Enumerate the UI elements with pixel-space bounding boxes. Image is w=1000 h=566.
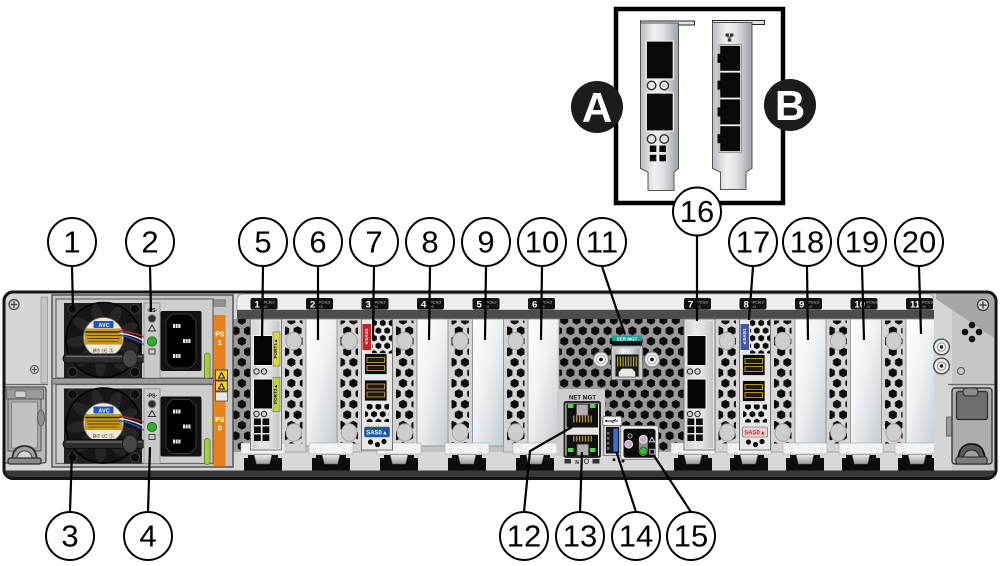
svg-text:17: 17 (736, 225, 770, 260)
svg-text:·PS·: ·PS· (147, 308, 158, 314)
svg-text:x8: x8 (264, 305, 268, 309)
svg-text:8: 8 (744, 300, 749, 311)
svg-text:◄SAS1: ◄SAS1 (364, 328, 370, 346)
svg-text:8: 8 (421, 225, 438, 260)
svg-text:9: 9 (477, 225, 494, 260)
svg-text:x8: x8 (922, 305, 926, 309)
svg-text:15: 15 (674, 519, 708, 554)
svg-text:x8: x8 (319, 305, 323, 309)
svg-text:7: 7 (688, 300, 693, 311)
svg-text:AVC: AVC (98, 408, 109, 414)
svg-text:PORT1▲: PORT1▲ (273, 339, 278, 359)
svg-text:SAS0▲: SAS0▲ (744, 431, 766, 437)
svg-text:19: 19 (845, 225, 879, 260)
svg-text:x8: x8 (375, 305, 379, 309)
svg-text:x8: x8 (867, 305, 871, 309)
svg-text:PCIe3: PCIe3 (922, 300, 934, 305)
svg-text:PCIe3: PCIe3 (486, 300, 498, 305)
svg-text:℟® cЄ Ⓢ: ℟® cЄ Ⓢ (93, 348, 114, 355)
svg-text:NET MGT: NET MGT (569, 396, 596, 402)
svg-text:1: 1 (63, 225, 80, 260)
svg-text:6: 6 (309, 225, 326, 260)
svg-text:11: 11 (586, 225, 618, 260)
svg-text:7: 7 (365, 225, 382, 260)
svg-text:3: 3 (366, 300, 371, 311)
svg-text:AVC: AVC (98, 323, 109, 329)
svg-text:14: 14 (619, 519, 653, 554)
svg-text:◄SAS1: ◄SAS1 (742, 328, 748, 346)
svg-text:PCIe3: PCIe3 (867, 300, 879, 305)
svg-text:PORT2▲: PORT2▲ (273, 384, 278, 404)
svg-text:x8: x8 (753, 305, 757, 309)
svg-text:6: 6 (532, 300, 537, 311)
svg-text:PCIe3: PCIe3 (808, 300, 820, 305)
svg-text:10: 10 (525, 225, 559, 260)
svg-text:1: 1 (255, 300, 261, 311)
svg-text:13: 13 (563, 519, 597, 554)
svg-text:PCIe3: PCIe3 (753, 300, 765, 305)
svg-text:2: 2 (310, 300, 315, 311)
svg-text:0: 0 (218, 424, 222, 433)
svg-text:SAS0▲: SAS0▲ (366, 431, 388, 437)
svg-text:B: B (775, 82, 805, 129)
svg-text:3: 3 (61, 519, 78, 554)
svg-text:4: 4 (421, 300, 427, 311)
svg-text:PCIe3: PCIe3 (430, 300, 442, 305)
svg-text:SER MGT: SER MGT (617, 336, 638, 341)
svg-text:12: 12 (507, 519, 541, 554)
svg-text:·PS·: ·PS· (147, 394, 158, 400)
svg-text:1: 1 (218, 338, 222, 347)
svg-text:PCIe3: PCIe3 (264, 300, 276, 305)
svg-text:4: 4 (139, 519, 156, 554)
svg-text:18: 18 (790, 225, 824, 260)
svg-text:PCIe3: PCIe3 (375, 300, 387, 305)
svg-text:5: 5 (254, 225, 271, 260)
svg-text:PCIe3: PCIe3 (319, 300, 331, 305)
svg-text:5: 5 (477, 300, 483, 311)
svg-text:A: A (582, 84, 612, 131)
svg-text:16: 16 (680, 194, 714, 229)
svg-text:2: 2 (141, 225, 158, 260)
svg-text:PCIe3: PCIe3 (697, 300, 709, 305)
svg-text:20: 20 (902, 225, 936, 260)
svg-text:℟® cЄ Ⓢ: ℟® cЄ Ⓢ (93, 433, 114, 440)
svg-text:9: 9 (799, 300, 804, 311)
svg-text:PCIe3: PCIe3 (541, 300, 553, 305)
svg-text:N: N (575, 460, 579, 466)
